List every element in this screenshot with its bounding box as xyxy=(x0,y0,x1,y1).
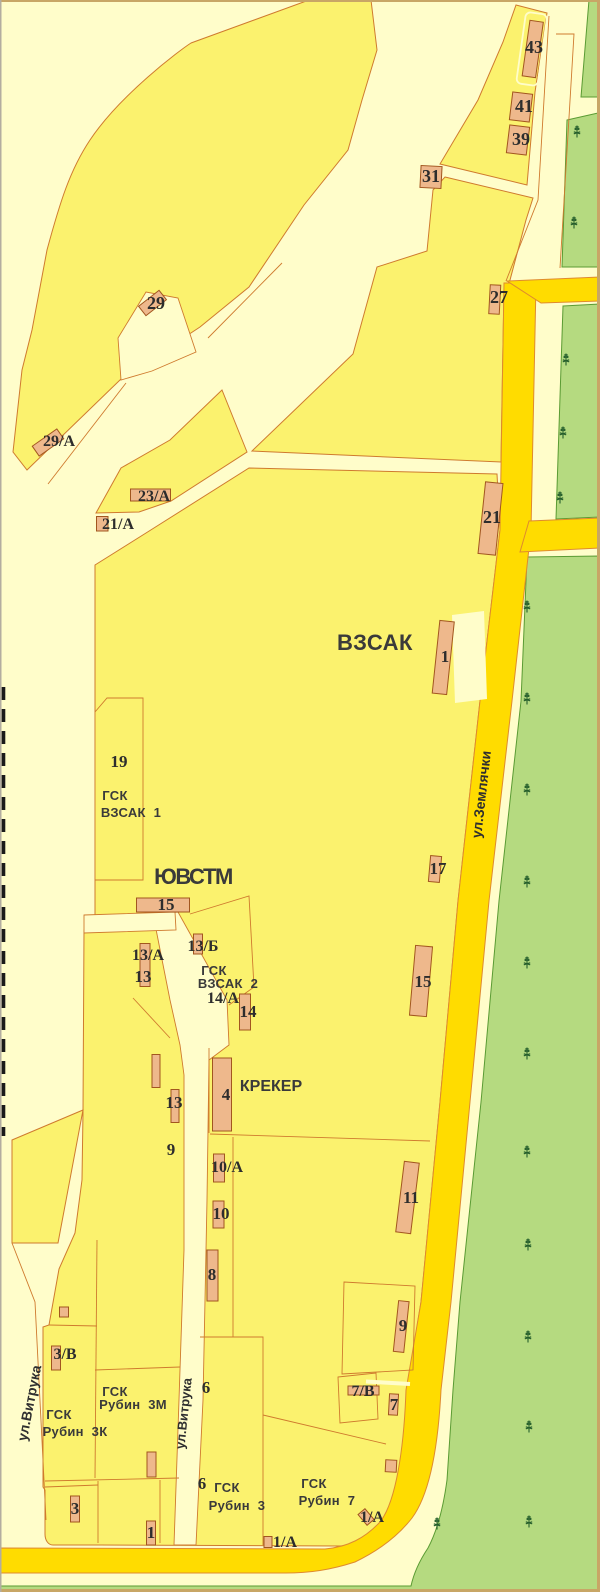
svg-text:17: 17 xyxy=(430,859,448,878)
svg-text:7: 7 xyxy=(390,1395,399,1414)
svg-text:41: 41 xyxy=(515,96,533,116)
svg-text:ГСК: ГСК xyxy=(301,1476,326,1491)
svg-text:21: 21 xyxy=(483,507,501,527)
svg-text:ГСК: ГСК xyxy=(46,1407,71,1422)
svg-text:ЮВСТМ: ЮВСТМ xyxy=(154,864,232,889)
svg-text:14: 14 xyxy=(240,1002,258,1021)
svg-text:Рубин 3: Рубин 3 xyxy=(209,1498,266,1513)
svg-text:15: 15 xyxy=(158,895,175,914)
svg-text:14/А: 14/А xyxy=(207,990,239,1007)
svg-text:ГСК: ГСК xyxy=(102,788,127,803)
svg-text:6: 6 xyxy=(202,1378,211,1397)
svg-text:1/А: 1/А xyxy=(273,1534,297,1551)
svg-text:21/А: 21/А xyxy=(102,516,134,533)
svg-text:43: 43 xyxy=(525,37,543,57)
svg-text:ВЗСАК 2: ВЗСАК 2 xyxy=(198,976,258,991)
svg-text:ВЗСАК 1: ВЗСАК 1 xyxy=(101,805,161,820)
svg-text:Рубин 7: Рубин 7 xyxy=(299,1493,356,1508)
svg-text:КРЕКЕР: КРЕКЕР xyxy=(240,1078,303,1095)
svg-text:19: 19 xyxy=(111,752,128,771)
svg-text:9: 9 xyxy=(167,1140,176,1159)
svg-text:ВЗСАК: ВЗСАК xyxy=(337,630,413,655)
svg-text:15: 15 xyxy=(415,972,432,991)
svg-text:13: 13 xyxy=(135,967,152,986)
svg-text:3/В: 3/В xyxy=(53,1346,76,1363)
svg-text:13: 13 xyxy=(166,1093,183,1112)
svg-text:4: 4 xyxy=(222,1085,231,1104)
svg-text:13/А: 13/А xyxy=(132,947,164,964)
svg-text:Рубин 3М: Рубин 3М xyxy=(99,1397,167,1412)
svg-text:7/В: 7/В xyxy=(351,1383,374,1400)
svg-text:27: 27 xyxy=(490,287,508,307)
svg-text:Рубин 3К: Рубин 3К xyxy=(43,1424,108,1439)
svg-text:29: 29 xyxy=(147,293,165,313)
svg-text:1: 1 xyxy=(147,1523,156,1542)
svg-text:3: 3 xyxy=(71,1499,80,1518)
svg-text:ГСК: ГСК xyxy=(214,1480,239,1495)
svg-text:1/А: 1/А xyxy=(360,1509,384,1526)
svg-text:29/А: 29/А xyxy=(43,433,75,450)
svg-text:31: 31 xyxy=(422,166,440,186)
svg-text:10/А: 10/А xyxy=(211,1159,243,1176)
svg-text:8: 8 xyxy=(208,1265,217,1284)
svg-text:11: 11 xyxy=(403,1188,419,1207)
svg-text:13/Б: 13/Б xyxy=(187,938,218,955)
svg-text:9: 9 xyxy=(399,1316,408,1335)
svg-text:1: 1 xyxy=(441,647,450,666)
svg-text:6: 6 xyxy=(198,1474,207,1493)
svg-text:39: 39 xyxy=(512,129,530,149)
svg-text:10: 10 xyxy=(213,1204,230,1223)
svg-text:23/А: 23/А xyxy=(138,488,170,505)
